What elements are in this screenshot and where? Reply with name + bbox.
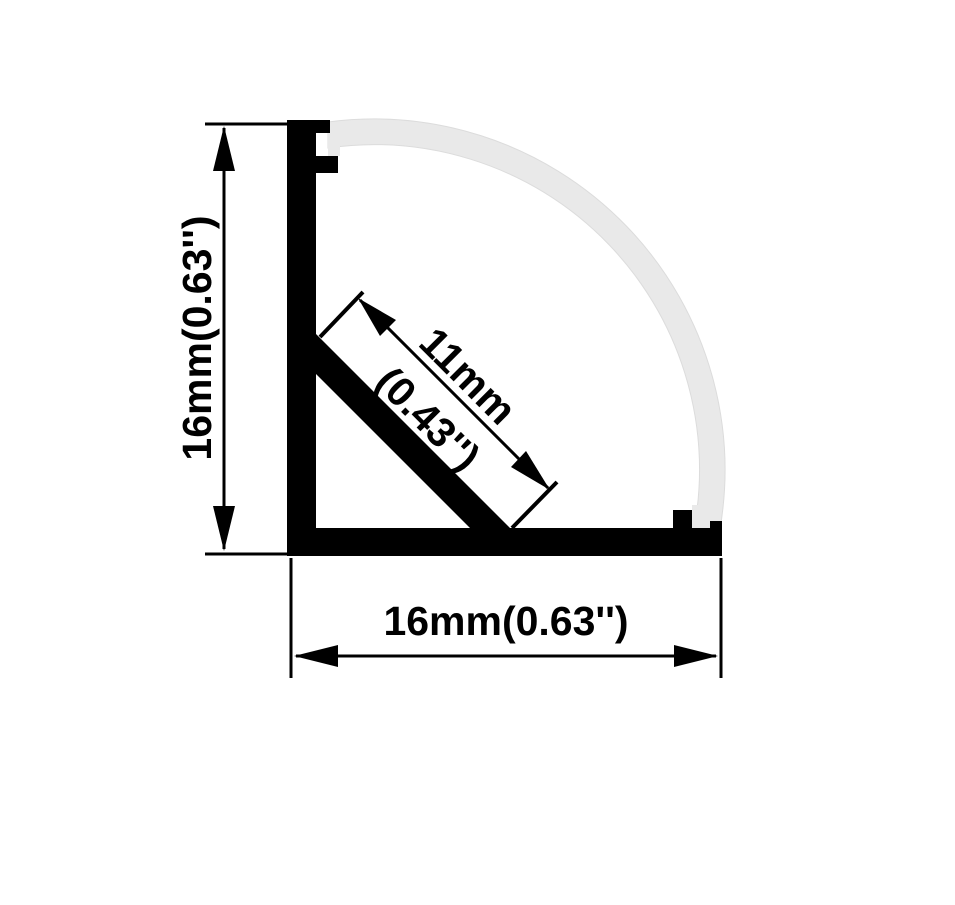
vertical-dimension-label: 16mm(0.63'') bbox=[174, 215, 220, 460]
profile-bottom-wall bbox=[287, 528, 722, 556]
profile-right-end-cap bbox=[710, 521, 722, 556]
profile-cross-section-drawing: 16mm(0.63'') 16mm(0.63'') 11mm (0.43'') bbox=[0, 0, 955, 905]
diffuser-bottom-tab bbox=[692, 505, 710, 531]
drawing-canvas: 16mm(0.63'') 16mm(0.63'') 11mm (0.43'') bbox=[0, 0, 955, 905]
profile-bottom-clip-hook bbox=[673, 510, 692, 530]
profile-top-clip-hook bbox=[316, 156, 338, 173]
profile-top-cap bbox=[287, 120, 330, 133]
horizontal-dimension-label: 16mm(0.63'') bbox=[383, 598, 628, 644]
profile-left-wall bbox=[287, 120, 316, 556]
